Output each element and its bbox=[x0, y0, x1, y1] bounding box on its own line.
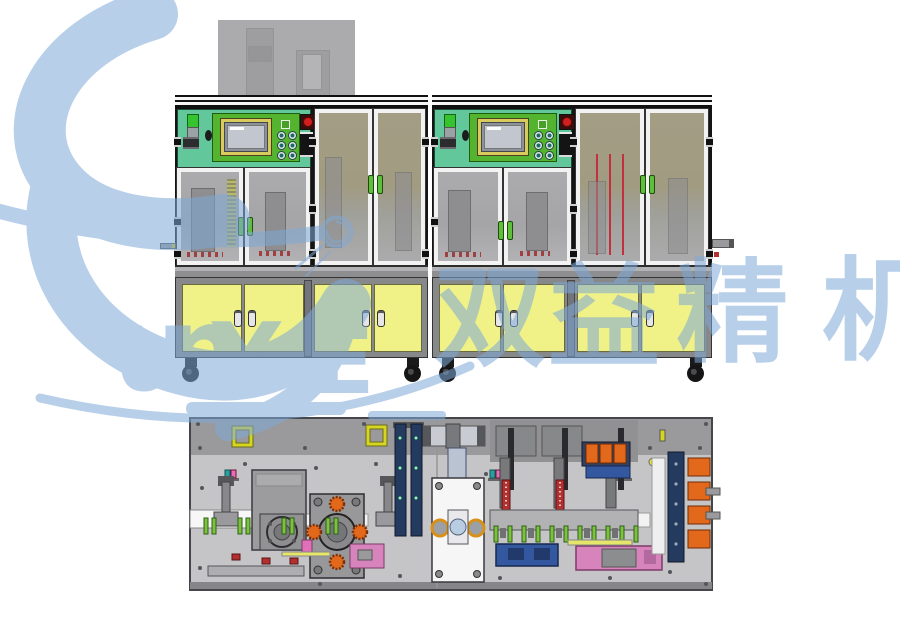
plan-view bbox=[190, 418, 712, 590]
hinge-icon bbox=[309, 249, 316, 259]
push-button bbox=[277, 131, 286, 140]
door-handle bbox=[238, 217, 244, 236]
front-edge-band bbox=[190, 582, 712, 589]
hmi-touchscreen bbox=[477, 118, 529, 156]
door-glass bbox=[580, 113, 640, 261]
yellow-strip bbox=[568, 540, 632, 545]
hinge-icon bbox=[422, 249, 429, 259]
emergency-stop-button bbox=[300, 114, 316, 130]
push-button bbox=[288, 141, 297, 150]
machine-1-cabinet bbox=[175, 277, 428, 358]
caster-wheel bbox=[179, 358, 203, 388]
caster-wheel bbox=[684, 358, 708, 388]
hinge-icon bbox=[309, 204, 316, 214]
glass-door bbox=[504, 168, 571, 265]
base-bar bbox=[208, 566, 304, 576]
hmi-screen bbox=[484, 125, 522, 149]
push-button bbox=[277, 151, 286, 160]
push-button bbox=[545, 151, 554, 160]
hinge-icon bbox=[570, 137, 577, 147]
hinge-icon bbox=[706, 137, 713, 147]
interior-machinery bbox=[265, 192, 286, 251]
hinge-icon bbox=[570, 249, 577, 259]
glass-door-tall bbox=[315, 109, 372, 265]
glass-door bbox=[177, 168, 243, 265]
glass-door-tall bbox=[646, 109, 708, 265]
machine-2-enclosure bbox=[432, 109, 712, 265]
door-handle bbox=[368, 175, 374, 194]
machine-2-cabinet bbox=[432, 277, 712, 358]
hinge-icon bbox=[174, 249, 181, 259]
panel-knob bbox=[205, 130, 212, 141]
push-button bbox=[545, 141, 554, 150]
machine-1-top-frame-rail bbox=[175, 95, 428, 109]
interior-machinery bbox=[191, 188, 215, 252]
pink-shuttle-plate bbox=[576, 546, 662, 570]
cabinet-handle bbox=[510, 310, 518, 327]
hinge-icon bbox=[570, 204, 577, 214]
hinge-icon bbox=[174, 217, 181, 227]
left-latch bbox=[160, 243, 176, 249]
press-plate bbox=[432, 478, 484, 582]
logo-underline-long bbox=[186, 402, 346, 415]
silhouette-press-right-body bbox=[302, 54, 322, 90]
interior-detail bbox=[259, 251, 290, 255]
cabinet-door bbox=[439, 284, 501, 352]
hinge-icon bbox=[431, 137, 438, 147]
operator-panel bbox=[212, 113, 300, 162]
glass-door bbox=[434, 168, 502, 265]
right-latch-detail bbox=[714, 252, 719, 257]
cabinet-post bbox=[304, 280, 312, 357]
blue-shuttle-plate bbox=[496, 544, 558, 566]
hinge-icon bbox=[706, 249, 713, 259]
machine-1-enclosure bbox=[175, 109, 428, 265]
door-glass bbox=[181, 172, 239, 261]
interior-machinery bbox=[668, 178, 687, 254]
interior-detail bbox=[187, 252, 223, 256]
door-glass bbox=[378, 113, 421, 261]
emergency-stop-button bbox=[559, 114, 575, 130]
machine-1-mid-rail bbox=[175, 265, 428, 277]
interior-perforated-strip bbox=[227, 179, 235, 247]
cabinet-door bbox=[182, 284, 242, 352]
indicator-lamp bbox=[281, 120, 290, 129]
machine-2-mid-rail bbox=[432, 265, 712, 277]
gripper-module bbox=[582, 442, 630, 478]
caster-wheel bbox=[401, 358, 425, 388]
push-button bbox=[288, 131, 297, 140]
interior-machinery bbox=[448, 190, 472, 253]
door-glass bbox=[249, 172, 306, 261]
machine-1-control-panel bbox=[177, 109, 311, 168]
door-handle bbox=[498, 221, 504, 240]
push-button bbox=[545, 131, 554, 140]
cabinet-handle bbox=[377, 310, 385, 327]
interior-detail bbox=[520, 251, 551, 255]
push-button bbox=[288, 151, 297, 160]
indicator-lamp bbox=[538, 120, 547, 129]
caster-wheel bbox=[436, 358, 460, 388]
cabinet-handle bbox=[248, 310, 256, 327]
silhouette-press-left-head bbox=[248, 46, 272, 62]
operator-panel bbox=[469, 113, 557, 162]
hmi-screen bbox=[227, 125, 265, 149]
push-button bbox=[534, 131, 543, 140]
hinge-icon bbox=[422, 137, 429, 147]
motor-block bbox=[252, 470, 306, 550]
hinge-icon bbox=[309, 137, 316, 147]
yellow-strip bbox=[282, 552, 330, 556]
door-handle bbox=[377, 175, 383, 194]
push-button bbox=[534, 141, 543, 150]
machine-2-top-frame-rail bbox=[432, 95, 712, 109]
interior-machinery bbox=[395, 172, 412, 251]
plan-view-drawing bbox=[190, 418, 712, 590]
cabinet-door bbox=[577, 284, 639, 352]
door-handle bbox=[507, 221, 513, 240]
hmi-touchscreen bbox=[220, 118, 272, 156]
door-glass bbox=[508, 172, 567, 261]
interior-detail bbox=[445, 252, 481, 256]
right-latch-handle bbox=[712, 239, 734, 248]
watermark-cjk-char-4: 机 bbox=[822, 256, 900, 368]
cabinet-handle bbox=[495, 310, 503, 327]
machine-2-front-view bbox=[432, 95, 712, 393]
interior-machinery bbox=[588, 181, 606, 254]
machine-1-front-view bbox=[175, 95, 428, 393]
panel-knob bbox=[462, 130, 469, 141]
cabinet-handle bbox=[646, 310, 654, 327]
push-button bbox=[277, 141, 286, 150]
interior-machinery bbox=[526, 192, 548, 251]
door-handle bbox=[247, 217, 253, 236]
glass-door-tall bbox=[576, 109, 644, 265]
hmi-bezel bbox=[481, 122, 525, 152]
glass-door bbox=[245, 168, 310, 265]
hmi-bezel bbox=[224, 122, 268, 152]
cabinet-handle bbox=[631, 310, 639, 327]
door-glass bbox=[438, 172, 498, 261]
interior-machinery bbox=[325, 157, 342, 248]
signal-tower-connector bbox=[440, 137, 456, 149]
door-handle bbox=[640, 175, 646, 194]
door-glass bbox=[319, 113, 368, 261]
cabinet-handle bbox=[234, 310, 242, 327]
machine-2-control-panel bbox=[434, 109, 572, 168]
cabinet-handle bbox=[362, 310, 370, 327]
cabinet-post bbox=[567, 280, 575, 357]
cad-drawing-canvas: u n Y E 双 益 精 机 bbox=[0, 0, 900, 636]
door-glass bbox=[650, 113, 704, 261]
push-button bbox=[534, 151, 543, 160]
hinge-icon bbox=[174, 137, 181, 147]
hinge-icon bbox=[431, 217, 438, 227]
pink-fixture-clamp bbox=[358, 550, 372, 560]
signal-tower-connector bbox=[183, 137, 199, 149]
door-handle bbox=[649, 175, 655, 194]
